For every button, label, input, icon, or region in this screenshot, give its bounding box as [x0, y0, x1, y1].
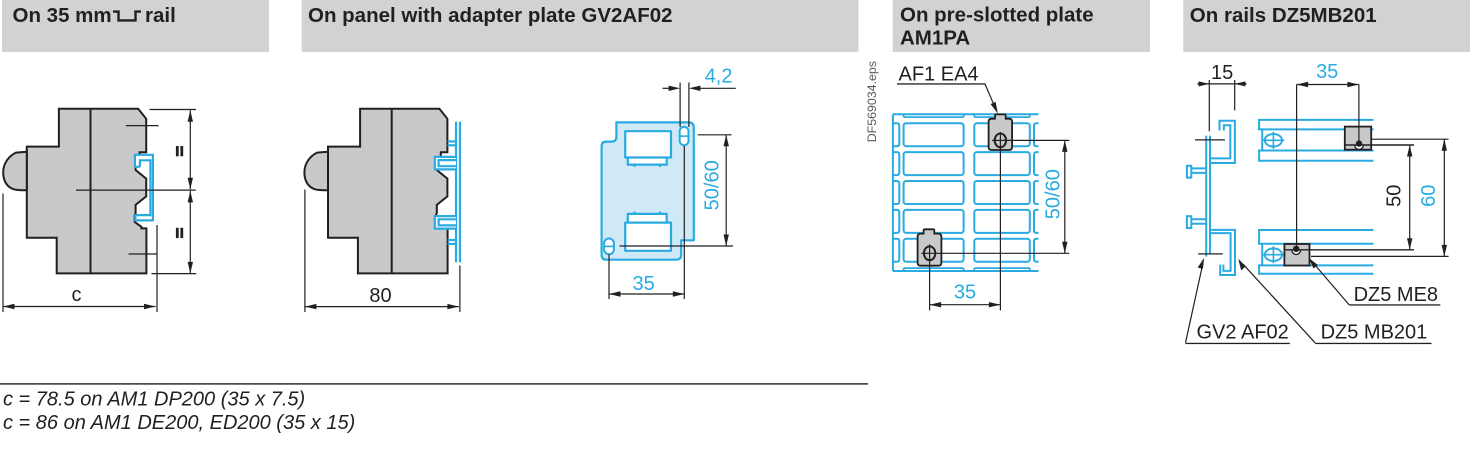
svg-text:c = 78.5 on AM1 DP200 (35 x 7.: c = 78.5 on AM1 DP200 (35 x 7.5) [3, 389, 305, 411]
svg-text:4,2: 4,2 [705, 66, 733, 88]
svg-text:c: c [72, 284, 82, 306]
svg-text:rail: rail [145, 4, 176, 27]
svg-text:On panel with adapter plate GV: On panel with adapter plate GV2AF02 [308, 4, 673, 27]
svg-text:DZ5 ME8: DZ5 ME8 [1354, 284, 1438, 306]
svg-text:On 35 mm: On 35 mm [13, 4, 112, 27]
svg-text:60: 60 [1418, 185, 1440, 207]
svg-text:15: 15 [1211, 62, 1233, 84]
svg-text:DZ5 MB201: DZ5 MB201 [1321, 322, 1428, 344]
svg-text:AF1 EA4: AF1 EA4 [899, 63, 979, 85]
svg-text:50: 50 [1384, 185, 1406, 207]
svg-text:DF569034.eps: DF569034.eps [865, 61, 879, 142]
svg-text:AM1PA: AM1PA [900, 27, 970, 50]
svg-text:35: 35 [954, 282, 976, 304]
svg-text:GV2 AF02: GV2 AF02 [1197, 322, 1289, 344]
svg-text:c = 86 on AM1 DE200, ED200 (35: c = 86 on AM1 DE200, ED200 (35 x 15) [3, 412, 355, 434]
svg-text:50/60: 50/60 [1043, 169, 1065, 219]
svg-text:35: 35 [632, 273, 654, 295]
svg-text:80: 80 [369, 285, 391, 307]
svg-text:50/60: 50/60 [702, 160, 724, 210]
svg-text:On pre-slotted plate: On pre-slotted plate [900, 4, 1094, 27]
svg-text:On rails DZ5MB201: On rails DZ5MB201 [1190, 4, 1377, 27]
svg-text:35: 35 [1316, 61, 1338, 83]
